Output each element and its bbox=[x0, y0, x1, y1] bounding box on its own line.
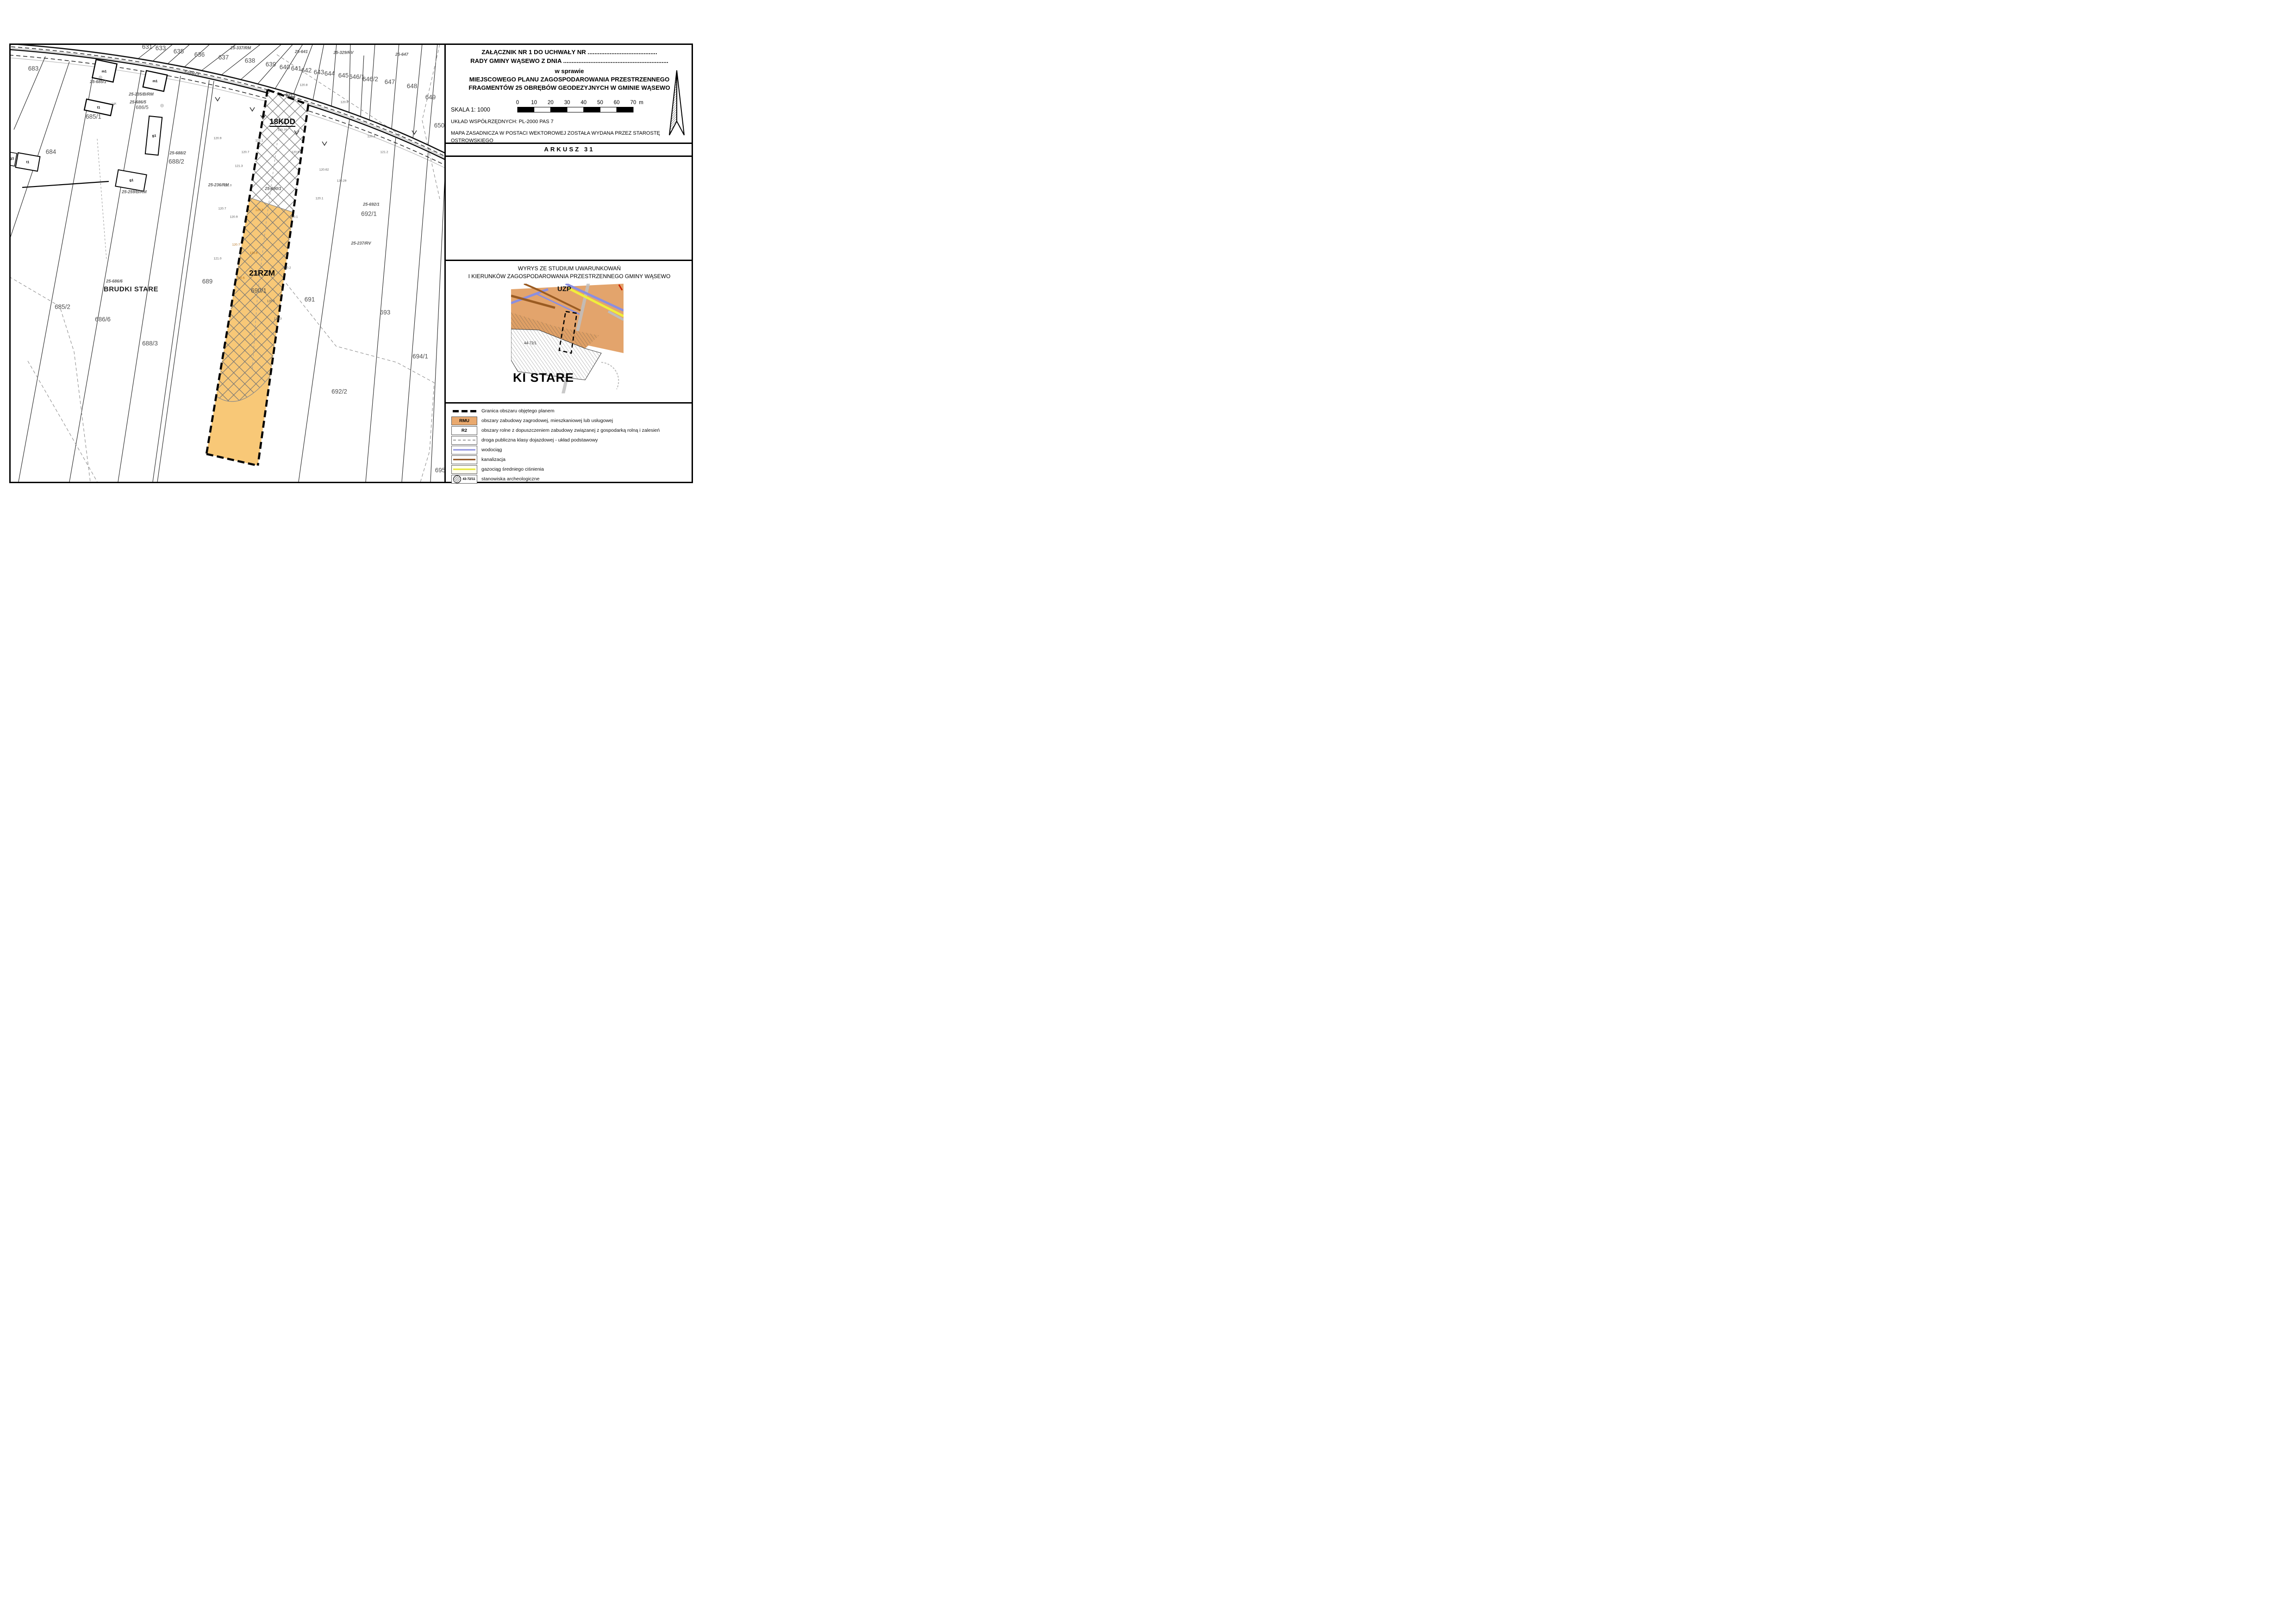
title-line-5: FRAGMENTÓW 25 OBRĘBÓW GEODEZYJNYCH W GMI… bbox=[449, 84, 690, 91]
legend-label: kanalizacja bbox=[481, 457, 505, 462]
legend-row-sewer: kanalizacja bbox=[451, 455, 505, 464]
panel-line-2 bbox=[444, 155, 693, 157]
gas-symbol bbox=[451, 465, 477, 474]
map-source-line-2: OSTROWSKIEGO bbox=[451, 138, 493, 143]
map-source-line-1: MAPA ZASADNICZA W POSTACI WEKTOROWEJ ZOS… bbox=[451, 131, 660, 136]
legend-row-archeology: 43-72/11 stanowiska archeologiczne bbox=[451, 474, 540, 484]
archeology-symbol: 43-72/11 bbox=[451, 475, 477, 484]
inset-uzp-label: UZP bbox=[557, 285, 571, 293]
scale-text: SKALA 1: 1000 bbox=[451, 106, 490, 113]
scale-tick-label: 10 bbox=[531, 100, 537, 106]
title-line-3: w sprawie bbox=[449, 68, 690, 75]
studium-inset-map: UZP 44-72/1 KI STARE bbox=[511, 284, 624, 393]
panel-line-3 bbox=[444, 260, 693, 261]
wyrys-line-1: WYRYS ZE STUDIUM UWARUNKOWAŃ bbox=[449, 265, 690, 272]
arkusz-label: ARKUSZ 31 bbox=[449, 146, 690, 153]
legend-label: droga publiczna klasy dojazdowej - układ… bbox=[481, 437, 598, 443]
coord-system-text: UKŁAD WSPÓŁRZĘDNYCH: PL-2000 PAS 7 bbox=[451, 119, 554, 124]
inset-site-code-label: 44-72/1 bbox=[524, 341, 537, 345]
panel-divider bbox=[444, 44, 446, 483]
title-line-2: RADY GMINY WĄSEWO Z DNIA ...............… bbox=[449, 57, 690, 64]
legend-row-rmu: RMU obszary zabudowy zagrodowej, mieszka… bbox=[451, 416, 613, 425]
scale-unit-label: m bbox=[639, 100, 643, 106]
plan-boundary-symbol bbox=[453, 410, 476, 412]
legend-row-boundary: Granica obszaru objętego planem bbox=[451, 406, 555, 416]
legend-label: obszary zabudowy zagrodowej, mieszkaniow… bbox=[481, 418, 613, 423]
inset-town-label: KI STARE bbox=[513, 371, 574, 385]
scale-tick-label: 0 bbox=[516, 100, 519, 106]
plan-sheet: 683684685/1685/2686/6688/3688/2689690/16… bbox=[0, 0, 724, 512]
scale-tick-label: 60 bbox=[614, 100, 620, 106]
legend-row-r2: R2 obszary rolne z dopuszczeniem zabudow… bbox=[451, 426, 660, 435]
r2-swatch: R2 bbox=[451, 426, 477, 435]
legend-label: obszary rolne z dopuszczeniem zabudowy z… bbox=[481, 428, 660, 433]
rmu-swatch: RMU bbox=[451, 417, 477, 425]
legend-row-gas: gazociąg średniego ciśnienia bbox=[451, 465, 544, 474]
scale-tick-label: 20 bbox=[548, 100, 554, 106]
title-line-4: MIEJSCOWEGO PLANU ZAGOSPODAROWANIA PRZES… bbox=[449, 76, 690, 83]
title-line-1: ZAŁĄCZNIK NR 1 DO UCHWAŁY NR ...........… bbox=[449, 49, 690, 56]
scale-tick-label: 70 bbox=[630, 100, 636, 106]
legend-row-road: droga publiczna klasy dojazdowej - układ… bbox=[451, 435, 598, 445]
legend-label: stanowiska archeologiczne bbox=[481, 476, 540, 482]
wyrys-line-2: I KIERUNKÓW ZAGOSPODAROWANIA PRZESTRZENN… bbox=[449, 273, 690, 280]
legend-label: gazociąg średniego ciśnienia bbox=[481, 466, 544, 472]
legend-label: wodociąg bbox=[481, 447, 502, 453]
scale-tick-label: 30 bbox=[564, 100, 570, 106]
scale-tick-label: 50 bbox=[597, 100, 603, 106]
road-symbol bbox=[451, 436, 477, 445]
sewer-symbol bbox=[451, 455, 477, 464]
panel-line-4 bbox=[444, 402, 693, 404]
scale-tick-label: 40 bbox=[580, 100, 586, 106]
water-symbol bbox=[451, 446, 477, 454]
legend-row-water: wodociąg bbox=[451, 445, 502, 454]
archeology-circle-icon bbox=[453, 475, 461, 483]
legend-label: Granica obszaru objętego planem bbox=[481, 408, 555, 414]
